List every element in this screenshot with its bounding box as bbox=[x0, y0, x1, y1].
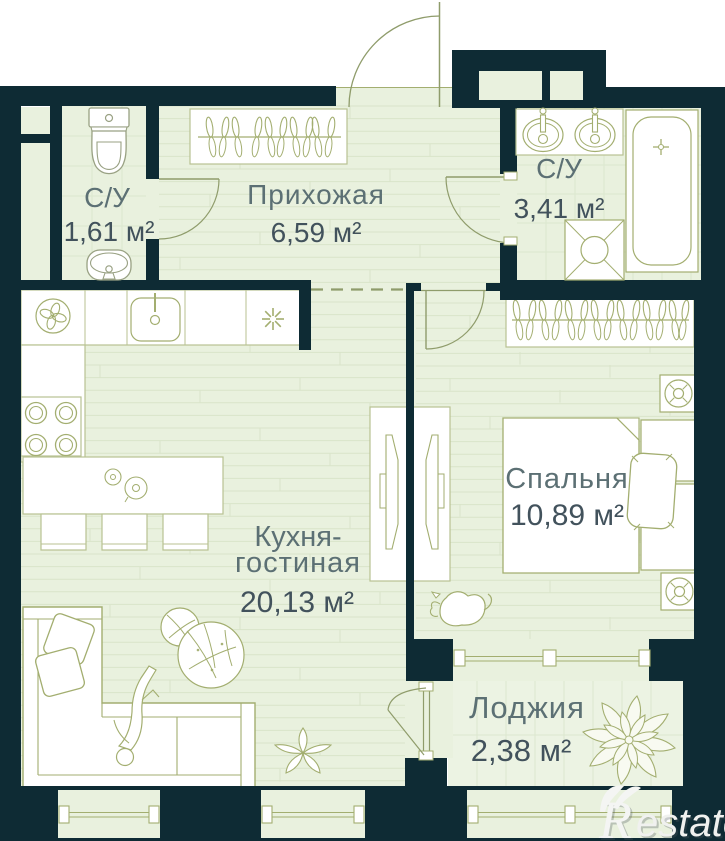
svg-text:С/У: С/У bbox=[536, 153, 582, 184]
svg-text:estate: estate bbox=[636, 801, 725, 841]
svg-text:1,61 м²: 1,61 м² bbox=[64, 216, 155, 247]
svg-text:3,41 м²: 3,41 м² bbox=[514, 193, 605, 224]
svg-text:6,59 м²: 6,59 м² bbox=[271, 217, 362, 248]
svg-text:Лоджия: Лоджия bbox=[469, 690, 585, 725]
svg-text:гостиная: гостиная bbox=[235, 547, 361, 579]
svg-text:Спальня: Спальня bbox=[505, 463, 629, 495]
svg-text:С/У: С/У bbox=[84, 182, 130, 213]
svg-text:R: R bbox=[598, 790, 632, 841]
svg-text:10,89 м²: 10,89 м² bbox=[510, 499, 624, 532]
svg-text:2,38 м²: 2,38 м² bbox=[471, 733, 572, 768]
svg-text:Прихожая: Прихожая bbox=[247, 179, 385, 210]
svg-text:20,13 м²: 20,13 м² bbox=[240, 586, 354, 619]
